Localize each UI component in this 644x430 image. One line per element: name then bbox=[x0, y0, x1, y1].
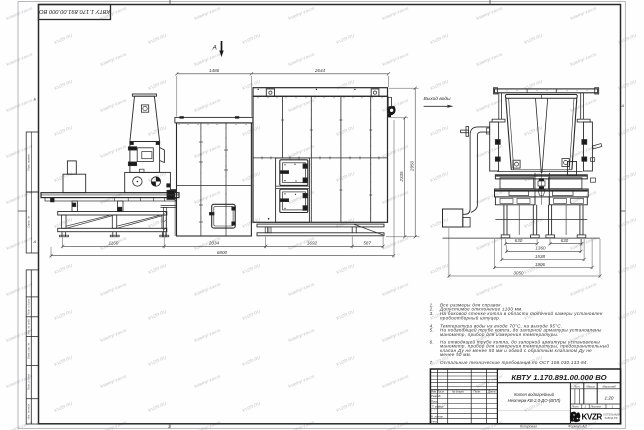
svg-text:Т. контр: Т. контр bbox=[432, 404, 444, 408]
svg-text:Дата: Дата bbox=[487, 390, 496, 394]
svg-text:2034: 2034 bbox=[208, 241, 220, 246]
svg-text:2644: 2644 bbox=[314, 68, 326, 73]
svg-text:Изм Лист: Изм Лист bbox=[431, 390, 445, 394]
svg-text:Инв. № дубл.: Инв. № дубл. bbox=[26, 318, 30, 334]
svg-text:1692: 1692 bbox=[307, 241, 318, 246]
svg-text:6.: 6. bbox=[430, 340, 434, 345]
svg-text:ЗАВОД.РФ: ЗАВОД.РФ bbox=[605, 416, 618, 420]
svg-text:3050: 3050 bbox=[513, 270, 524, 275]
svg-text:1:20: 1:20 bbox=[605, 395, 614, 400]
svg-text:KVZR: KVZR bbox=[582, 413, 603, 422]
svg-text:1538: 1538 bbox=[535, 254, 546, 259]
svg-text:5.: 5. bbox=[430, 328, 434, 333]
svg-text:Подп. и дата: Подп. и дата bbox=[26, 373, 30, 390]
svg-text:Инв. № подл.: Инв. № подл. bbox=[26, 403, 30, 419]
svg-text:Неотерм КВ-2,0-ДО-(ВПЛ): Неотерм КВ-2,0-ДО-(ВПЛ) bbox=[508, 398, 561, 403]
svg-text:А: А bbox=[33, 239, 37, 244]
svg-text:Н. контр.: Н. контр. bbox=[431, 415, 444, 419]
svg-text:КВТУ 1.170.891.00.000 ВО: КВТУ 1.170.891.00.000 ВО bbox=[39, 8, 110, 14]
svg-text:1360: 1360 bbox=[535, 246, 546, 251]
svg-text:6800: 6800 bbox=[217, 250, 228, 255]
svg-text:Масштаб: Масштаб bbox=[602, 384, 615, 388]
svg-text:Выход воды: Выход воды bbox=[424, 96, 451, 102]
svg-text:2950: 2950 bbox=[409, 160, 414, 172]
svg-text:Лит.: Лит. bbox=[573, 384, 581, 388]
svg-text:Разраб.: Разраб. bbox=[431, 394, 441, 398]
svg-text:2: 2 bbox=[167, 425, 170, 429]
svg-text:1486: 1486 bbox=[209, 68, 220, 73]
svg-text:КОТЕЛЬНЫЙ: КОТЕЛЬНЫЙ bbox=[604, 413, 620, 417]
svg-text:Формат А2: Формат А2 bbox=[568, 425, 587, 429]
svg-text:№ докум.: № докум. bbox=[452, 390, 465, 394]
svg-text:3.: 3. bbox=[430, 311, 434, 316]
svg-text:Лист: Лист bbox=[571, 405, 580, 409]
svg-text:КВТУ 1.170.891.00.000 ВО: КВТУ 1.170.891.00.000 ВО bbox=[511, 373, 606, 382]
svg-text:Остальные технические требован: Остальные технические требования по ОСТ … bbox=[440, 360, 588, 365]
svg-text:Копировал: Копировал bbox=[520, 425, 537, 429]
svg-text:7.: 7. bbox=[430, 360, 434, 365]
svg-text:630: 630 bbox=[561, 238, 569, 243]
svg-text:587: 587 bbox=[363, 241, 371, 246]
svg-text:1160: 1160 bbox=[108, 241, 118, 246]
svg-text:Утв.: Утв. bbox=[431, 420, 438, 424]
svg-text:Пров.: Пров. bbox=[431, 399, 439, 403]
svg-text:А: А bbox=[621, 103, 625, 108]
svg-text:Перв. примен.: Перв. примен. bbox=[26, 153, 30, 171]
svg-text:менее 50 мм.: менее 50 мм. bbox=[440, 352, 472, 357]
svg-text:манометр, прибор для измерения: манометр, прибор для измерения температу… bbox=[440, 332, 559, 337]
svg-text:Подп.: Подп. bbox=[474, 390, 482, 394]
svg-text:Подп. и дата: Подп. и дата bbox=[26, 298, 30, 315]
svg-text:А: А bbox=[212, 45, 217, 52]
svg-text:Котел водогрейный: Котел водогрейный bbox=[514, 392, 555, 397]
svg-text:Масса: Масса bbox=[586, 384, 595, 388]
svg-text:Листов: Листов bbox=[590, 405, 602, 409]
svg-text:630: 630 bbox=[515, 238, 523, 243]
svg-text:Б: Б bbox=[34, 97, 37, 102]
svg-text:2335: 2335 bbox=[399, 171, 404, 183]
svg-text:пробоотборный штуцер.: пробоотборный штуцер. bbox=[440, 314, 501, 320]
svg-text:1906: 1906 bbox=[535, 262, 546, 267]
svg-text:Справ. №: Справ. № bbox=[26, 216, 30, 228]
svg-text:Взам. инв. №: Взам. инв. № bbox=[26, 343, 30, 359]
